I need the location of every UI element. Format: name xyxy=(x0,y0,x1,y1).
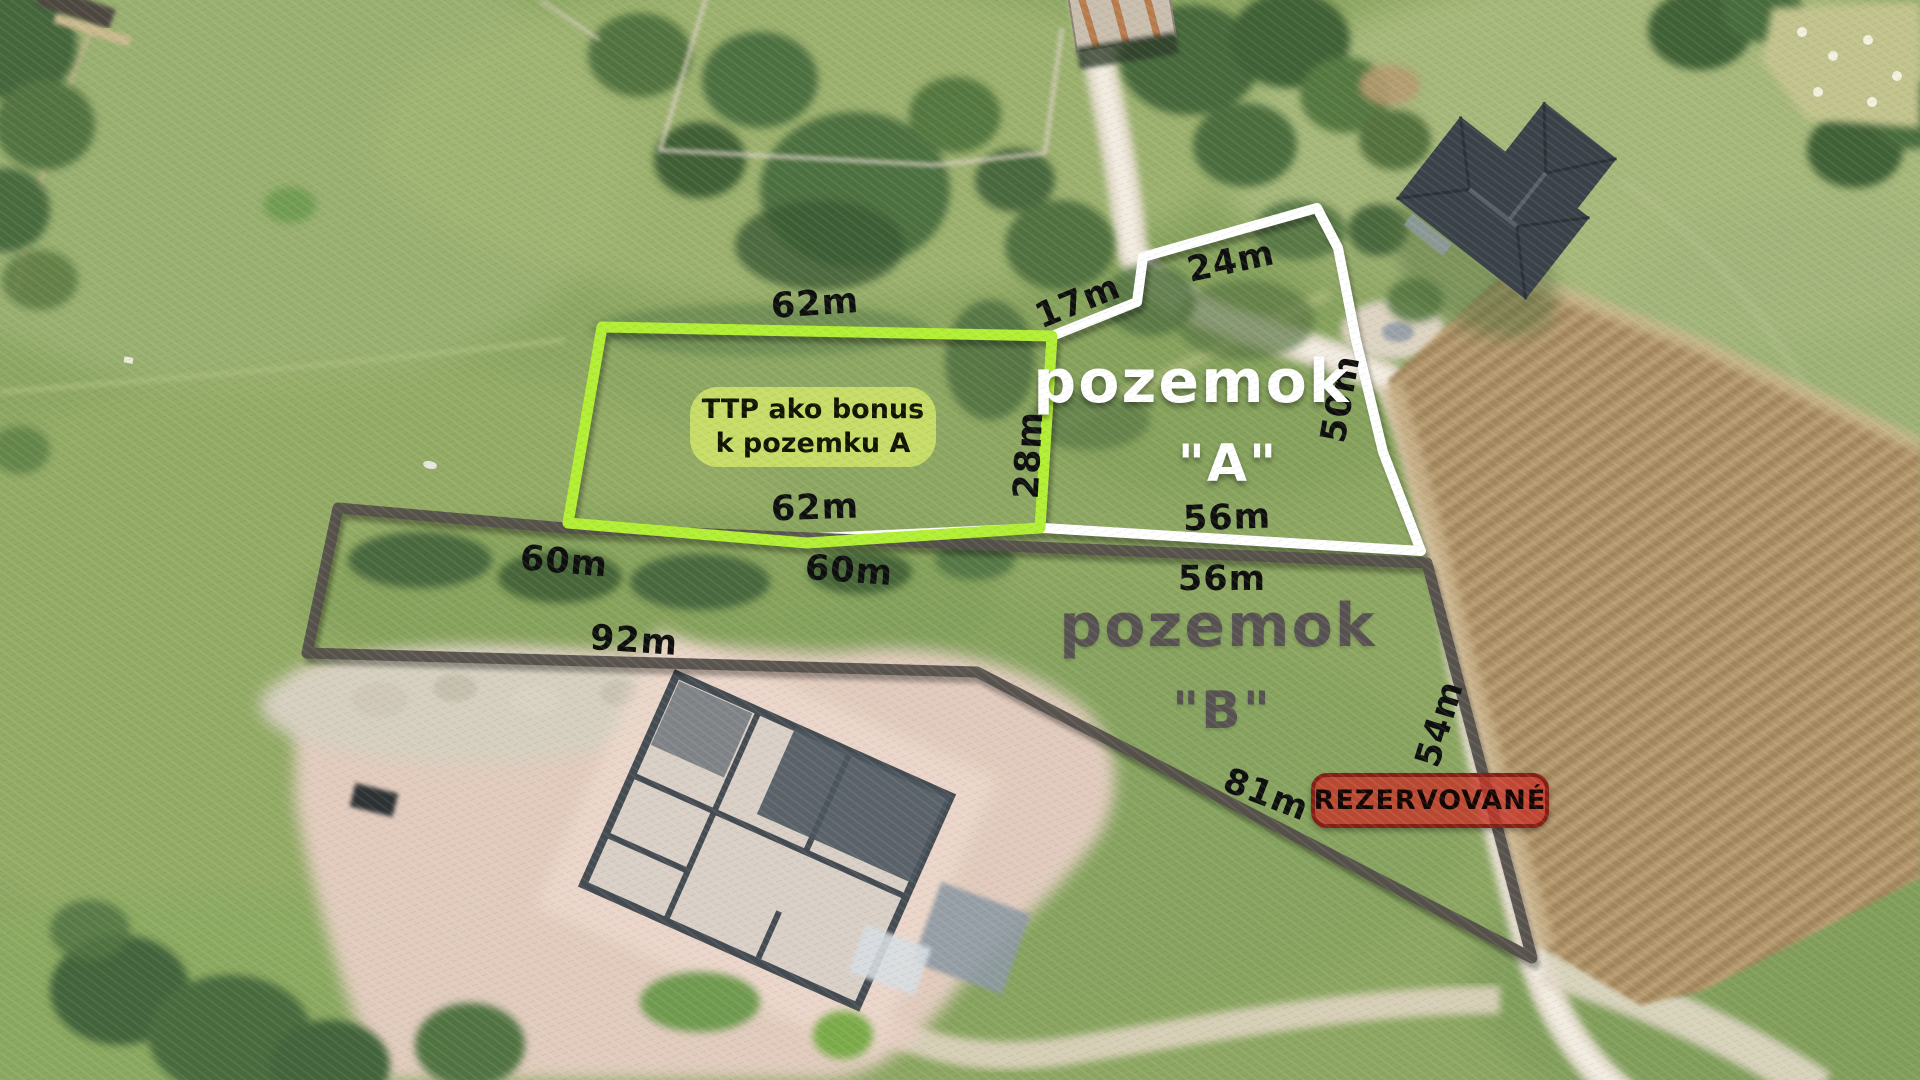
reserved-badge: REZERVOVANÉ xyxy=(1311,773,1549,828)
bonus-note-line1: TTP ako bonus xyxy=(702,393,924,427)
reserved-badge-text: REZERVOVANÉ xyxy=(1314,785,1547,816)
dim-label-62m-top: 62m xyxy=(770,281,861,327)
dim-label-56m-a: 56m xyxy=(1182,496,1272,539)
dim-label-60m-left: 60m xyxy=(518,538,609,586)
parcel-outlines xyxy=(0,0,1920,1080)
dim-label-92m: 92m xyxy=(589,618,680,664)
dim-label-28m: 28m xyxy=(1007,410,1052,500)
bonus-note-line2: k pozemku A xyxy=(716,427,911,461)
dim-label-60m-right: 60m xyxy=(804,548,895,594)
parcel-a-code: "A" xyxy=(1178,434,1278,494)
dim-label-62m-bottom: 62m xyxy=(770,486,860,529)
parcel-b-title: pozemok xyxy=(1059,591,1376,661)
parcel-b-outline xyxy=(307,508,1532,958)
aerial-parcel-map: 62m 62m 28m 17m 24m 50m 56m pozemok "A" … xyxy=(0,0,1920,1080)
parcel-a-title: pozemok xyxy=(1033,347,1350,417)
parcel-b-code: "B" xyxy=(1172,681,1272,741)
bonus-note: TTP ako bonus k pozemku A xyxy=(690,387,936,467)
